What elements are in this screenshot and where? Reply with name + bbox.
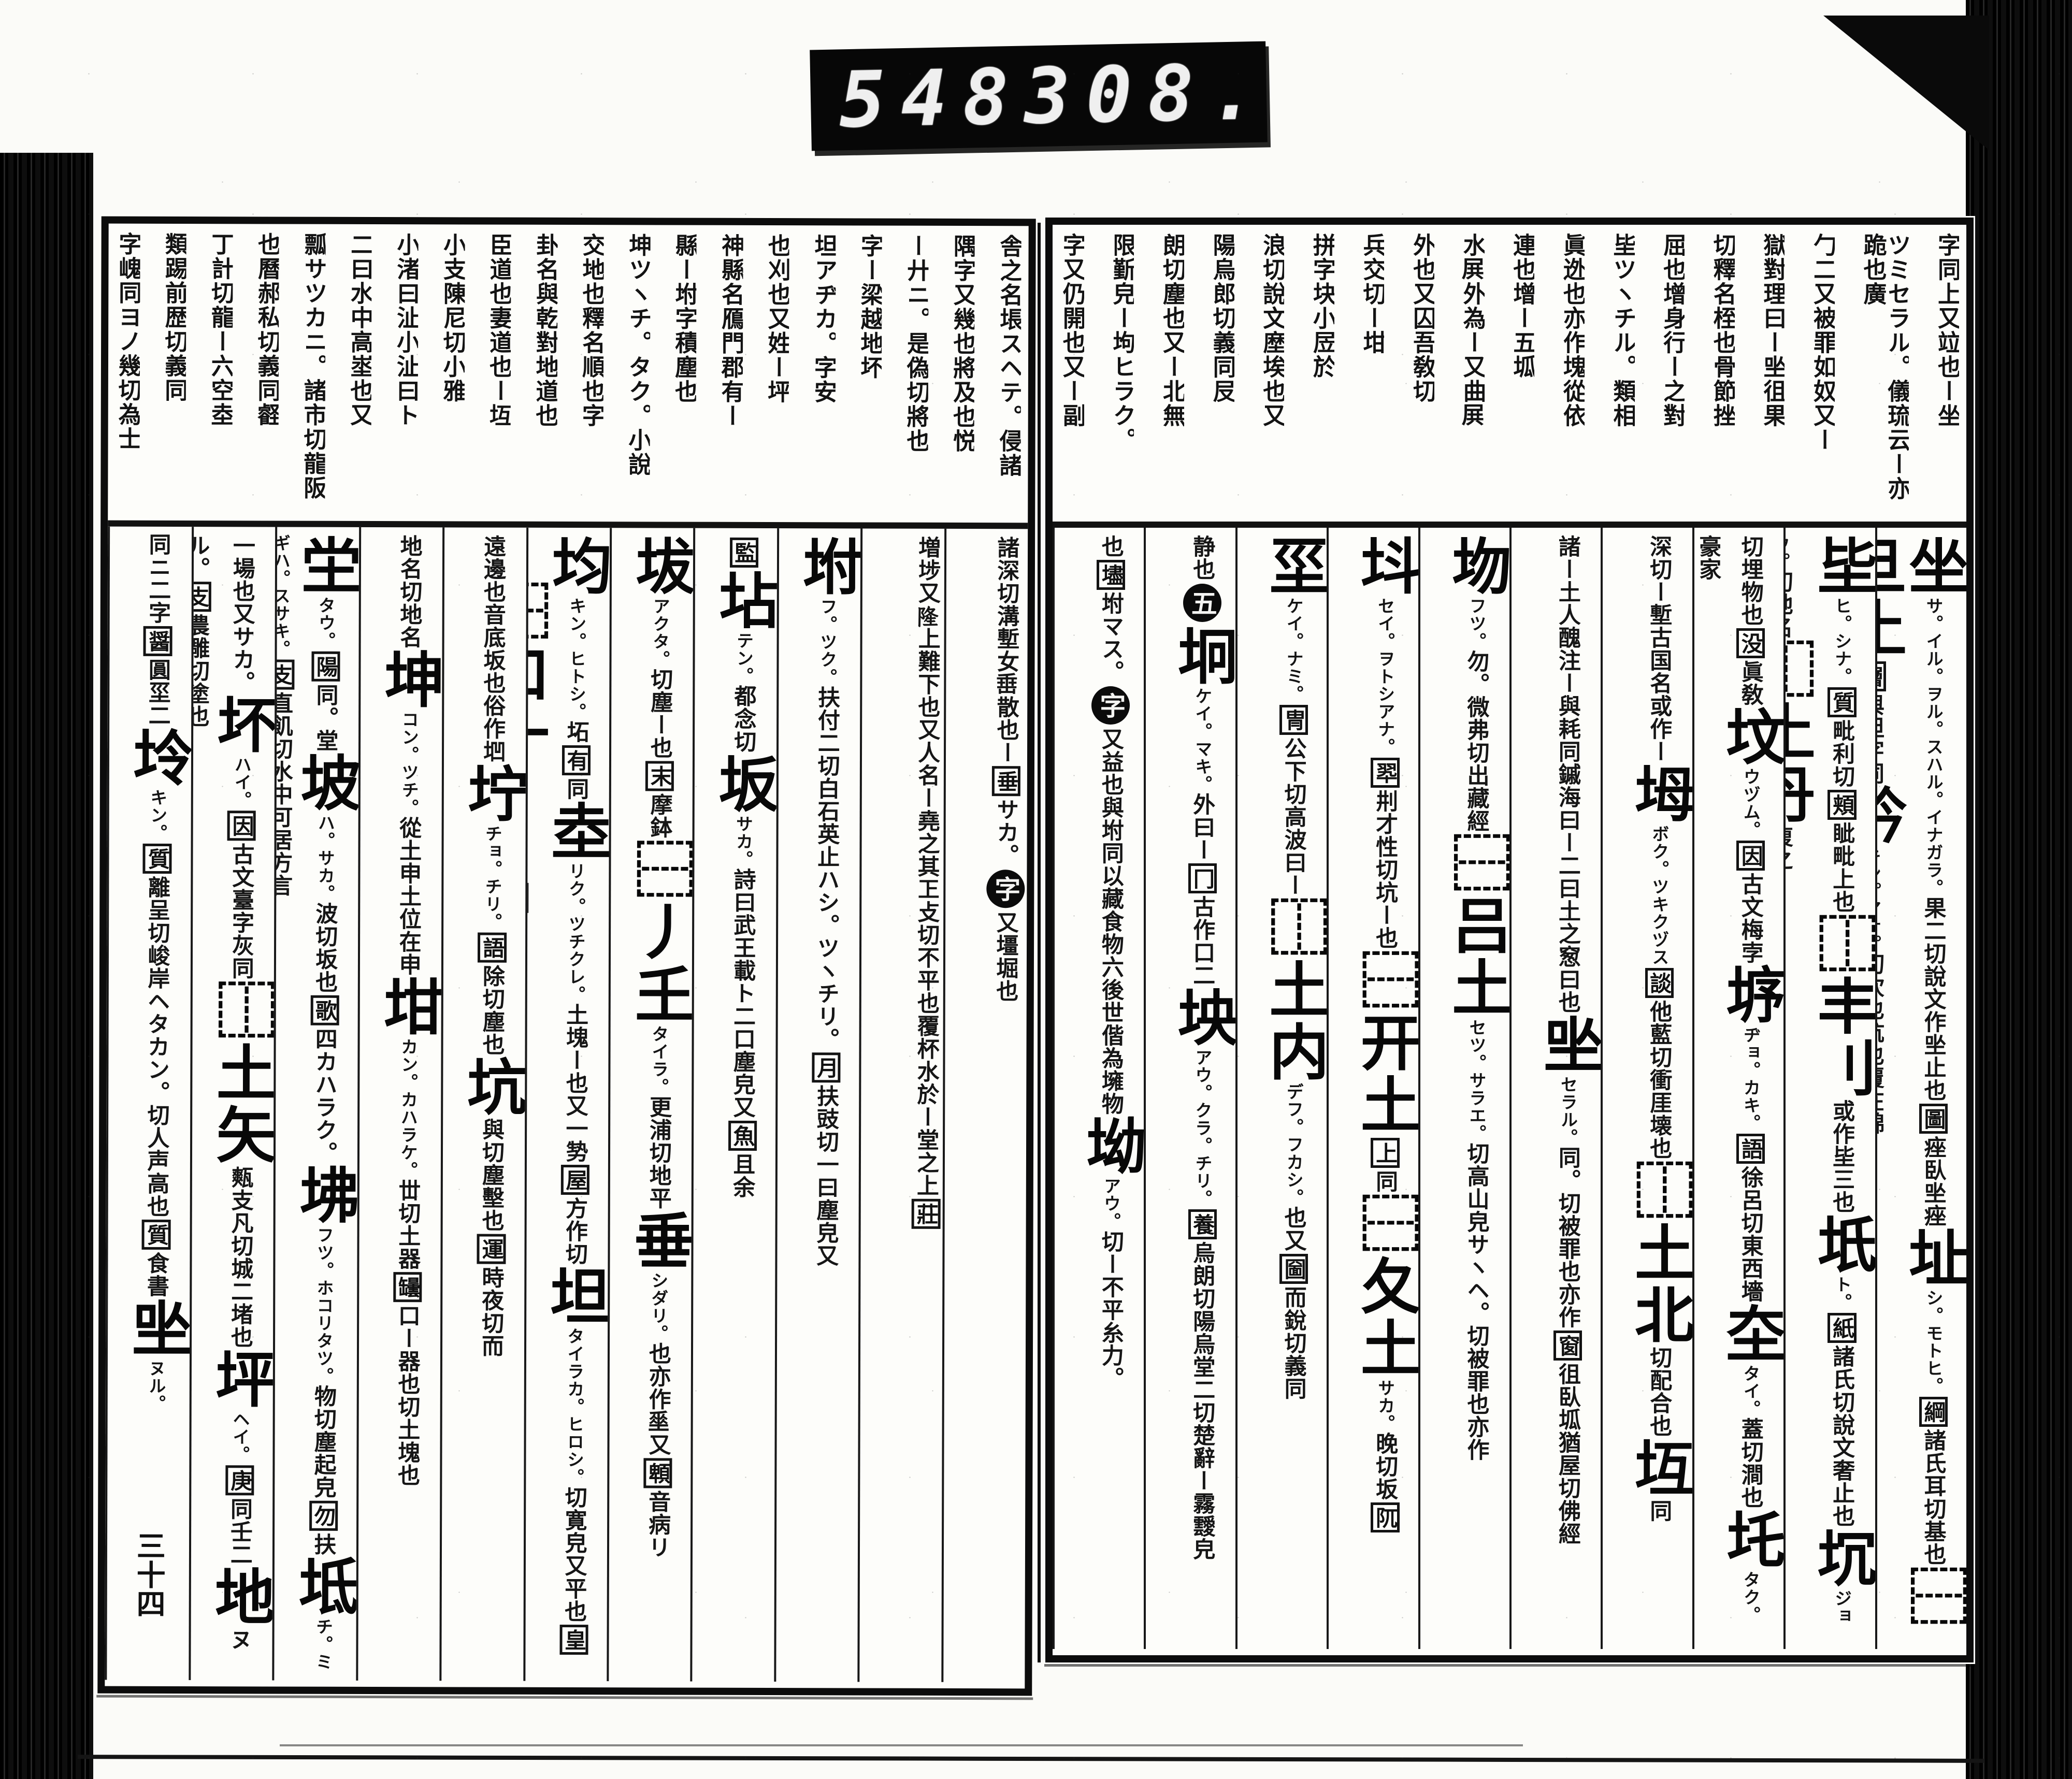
kana-reading: ケイ。マキ。 — [1192, 687, 1213, 793]
top-band-column: 朗切塵也又ー北無 — [1160, 233, 1184, 513]
top-band-column: 連也增ー五坬 — [1510, 233, 1534, 513]
gloss-note: 波切坂也 — [312, 902, 338, 993]
rhyme-ref-box: 勿 — [309, 1501, 338, 1531]
rhyme-ref-box: 因 — [1736, 841, 1765, 871]
kana-reading: ヘイ。 — [230, 1410, 250, 1463]
top-band-column: 小支陳尼切小雅 — [440, 233, 465, 513]
gloss-note: 切坎也坑也覆在錦 — [1875, 952, 1884, 1135]
gloss-note: 同。切被罪也亦作 — [1555, 1146, 1580, 1328]
gloss-note: 同壬二 — [226, 1497, 252, 1566]
gloss-note: 諸氏切說文奢止也 — [1829, 1345, 1855, 1527]
headword-character: 坈 — [1807, 1527, 1875, 1589]
entry-column: 坒ヒ。シナ。質毗利切頬眦毗上也⿰丰刂或作坒三也坁ト。紙諸氏切說文奢止也坈ジョウ。… — [1783, 528, 1875, 1649]
rhyme-ref-box: 運 — [477, 1234, 506, 1264]
top-band-column: 字同上又竝也ー坐 — [1935, 233, 1959, 513]
gloss-note: 土塊ー也又一㔟 — [562, 1003, 588, 1163]
gloss-note: ハシ。ツヽチリ。 — [813, 868, 840, 1050]
headword-character: 坣 — [291, 534, 359, 597]
kana-reading: ト。 — [1832, 1276, 1852, 1311]
page-right: 字同上又竝也ー坐ツミセラル。儀琉云ー亦跪也廣勹二又被罪如奴又ー獄對理曰ー㘴徂果切… — [1045, 218, 1974, 1662]
top-band-column: 舎之名㙊スヘテ。侵諸 — [996, 234, 1021, 514]
headword-character: 坘 — [1624, 1437, 1692, 1499]
kana-reading: タイラ。 — [649, 1025, 669, 1095]
gloss-note: 㓝才性切坑ー也 — [1372, 790, 1398, 949]
headword-character: 坺 — [625, 535, 693, 597]
top-band-column: 坦アヂカ。字安 — [811, 234, 836, 514]
top-band-column: 類踢前歴切義同 — [162, 232, 186, 512]
kana-reading: カン。カハラケ。 — [398, 1038, 419, 1179]
gloss-note: 切高山皃 — [1463, 1142, 1489, 1233]
gloss-note: 從土申土位在申 — [395, 816, 422, 976]
rhyme-ref-box: 紙 — [1828, 1313, 1856, 1343]
gloss-note: 農雕切塗也 — [189, 614, 209, 728]
kana-reading: タイラカ。ヒロシ。 — [564, 1327, 585, 1486]
gloss-note: 時夜切而 — [478, 1266, 504, 1357]
top-band-column: 交地也釋名順也字 — [579, 233, 604, 513]
headword-character: 坑 — [457, 1055, 526, 1118]
top-band-column: ー廾ニ。是偽切將也 — [903, 234, 928, 514]
gloss-note: 復之 — [1783, 825, 1793, 871]
top-band-column: 神縣名鴈門郡有ー — [718, 234, 743, 514]
entry-column: 也壗坿マス。字又益也與坿同以藏食物六後世偕為㙲物坳アウ。切ー不平糸力。 — [1053, 528, 1144, 1649]
gloss-note: 都念切 — [730, 685, 756, 753]
gloss-note: 他藍切衝厓壊也 — [1646, 1000, 1672, 1160]
rhyme-ref-box: 窗 — [1553, 1330, 1582, 1361]
gloss-note: 物切塵起皃 — [310, 1385, 337, 1499]
gloss-note: 増埗又𨺓上難下也又人名ー堯之其㠪 — [914, 536, 941, 901]
folio-number: 三十四 — [133, 1531, 163, 1618]
rhyme-ref-box: 末 — [645, 761, 674, 791]
entry-column: 坐サ。イル。ヲル。スハル。イナガラ。果二切說文作㘴止也圖痤臥㘴痤址シ。モトヒ。綱… — [1875, 528, 1966, 1649]
headword-character: 坅 — [1875, 785, 1907, 847]
gloss-note: 更浦切地平 — [645, 1095, 672, 1209]
gloss-note: 音病リ — [644, 1490, 670, 1558]
gloss-note: 切塵ー也 — [646, 668, 672, 759]
gloss-note: 離呈切峻岸 — [144, 876, 170, 990]
entry-column: 均キン。ヒトシ。坧有同坴リク。ツチクレ。土塊ー也又一㔟屋方作切坦タイラカ。ヒロシ… — [523, 528, 610, 1681]
gloss-note: 坧 — [563, 720, 589, 743]
headword-character: 坁 — [1807, 1213, 1875, 1276]
headword-character: 圶 — [1716, 1303, 1783, 1365]
top-band-column: 限斳皃ー坸ヒラク。 — [1110, 233, 1134, 513]
gloss-note: 坬猶屋切佛經 — [1555, 1408, 1580, 1545]
center-gutter — [1034, 223, 1044, 1662]
kana-reading: ヒ。シナ。 — [1832, 597, 1852, 685]
kana-reading: タク。 — [1740, 1571, 1761, 1624]
top-band-column: 陽烏郎切義同㞋 — [1210, 233, 1234, 513]
gloss-note: 切ー不平糸力。 — [1098, 1230, 1124, 1390]
kana-reading: キン。アナ。 — [1875, 847, 1882, 952]
entry-column: 圽フツ。勿。微弗切出藏經⿱吕土セツ。サラエ。切高山皃サヽヘ。切被罪也亦作 — [1418, 528, 1509, 1649]
headword-character: 坽 — [123, 727, 192, 789]
gloss-note: 公下切高波曰ー — [1280, 737, 1306, 896]
gloss-note: 除切塵也 — [479, 965, 505, 1056]
rhyme-ref-box: 綱 — [1919, 1397, 1948, 1427]
headword-character: 坤 — [374, 648, 442, 711]
kana-reading: アウ。 — [1101, 1177, 1121, 1230]
gloss-note: 晚切坂 — [1372, 1432, 1398, 1500]
top-band-column: 也曆郝私切義同壡 — [254, 232, 279, 512]
gloss-note: 切埋物也 — [1737, 535, 1763, 626]
headword-character: 址 — [1898, 1227, 1966, 1289]
headword-character: 㘰 — [1350, 535, 1418, 597]
top-band-column: ツミセラル。儀琉云ー亦跪也廣 — [1861, 233, 1909, 513]
gloss-note: 方作切 — [562, 1197, 587, 1265]
top-band-column: 水𡱒外為ー又曲𡱒 — [1460, 233, 1485, 513]
gloss-note: 也又 — [1280, 1206, 1306, 1252]
rhyme-ref-box: 阢 — [1371, 1502, 1399, 1532]
entry-column: 静也五坰ケイ。マキ。外曰ー冂古作口二坱アウ。クラ。チリ。養烏朗切陽烏堂二切楚辭ー… — [1144, 528, 1235, 1649]
page-right-main-register: 坐サ。イル。ヲル。スハル。イナガラ。果二切說文作㘴止也圖痤臥㘴痤址シ。モトヒ。綱… — [1053, 528, 1966, 1649]
kana-reading: ケイ。ナミ。 — [1284, 597, 1304, 703]
gloss-note: 国名或作ー — [1646, 649, 1672, 763]
headword-character: 坡 — [290, 752, 358, 814]
headword-character: ⿰土内 — [1259, 896, 1327, 1083]
kana-reading: シ。モトヒ。 — [1923, 1289, 1944, 1395]
kana-reading: タウ。 — [315, 597, 336, 649]
gloss-note: 古文梅孛 — [1737, 873, 1763, 964]
kana-reading: サカ。 — [1375, 1379, 1395, 1432]
rhyme-ref-box: 魚 — [728, 1121, 757, 1151]
bottom-scan-line — [78, 1755, 1984, 1763]
gloss-note: 四カハラク。 — [311, 1028, 338, 1164]
gloss-note: ヘタカン。切人声高也 — [143, 990, 170, 1218]
top-band-column: 字ー梁越地坏 — [857, 234, 882, 514]
top-band-column: 眞迯也亦作塊從依 — [1560, 233, 1585, 513]
top-band-column: 小渚曰沚小沚曰ト — [393, 233, 418, 513]
counter-left-number: 548 — [838, 52, 1025, 144]
gloss-note: 豪家 — [1695, 535, 1721, 581]
page-left: 舎之名㙊スヘテ。侵諸隅字又幾也將及也悦ー廾ニ。是偽切將也字ー梁越地坏坦アヂカ。字… — [97, 216, 1035, 1696]
top-band-column: 字㟴同ヨノ幾切為士 — [115, 232, 140, 512]
top-band-column: 二曰水中高埊也又 — [347, 233, 372, 513]
headword-character: 坿 — [793, 536, 860, 598]
rhyme-ref-box: 莊 — [912, 1199, 940, 1229]
entry-column: 遠邊也音底坂也俗作垇坾チョ。チリ。語除切塵也坑與切塵墼也運時夜切而 — [439, 527, 526, 1681]
section-marker: 字 — [1091, 686, 1130, 725]
kana-reading: フ。ツク。 — [817, 598, 838, 686]
rhyme-ref-box: 醤 — [143, 626, 172, 656]
headword-character: 坳 — [1076, 1115, 1144, 1177]
rhyme-ref-box: 監 — [729, 538, 758, 568]
gloss-note: 坿 — [1098, 592, 1124, 615]
rhyme-ref-box: 屋 — [561, 1165, 589, 1195]
gloss-note: 同 — [1646, 1499, 1672, 1522]
counter-display: 548 308. — [810, 41, 1268, 151]
top-band-column: 浪切說文塺埃也又 — [1260, 233, 1284, 513]
rhyme-ref-box: 壗 — [1097, 560, 1125, 590]
headword-character: 坶 — [1624, 763, 1692, 825]
headword-character: 坱 — [1168, 987, 1235, 1049]
gloss-note: 與切塵墼也 — [478, 1118, 505, 1232]
rhyme-ref-box: 月 — [812, 1052, 840, 1082]
rhyme-ref-box: 歌 — [310, 995, 339, 1025]
top-band-column: 丁計切龍ー六空坴 — [208, 232, 233, 512]
rhyme-ref-box: 質 — [142, 844, 171, 874]
gloss-note: 毗利切 — [1829, 719, 1855, 788]
gloss-note: 又壃堀也 — [992, 911, 1018, 1002]
top-band-column: 拼字块小㞐於 — [1310, 233, 1334, 513]
kana-reading: リク。ツチクレ。 — [566, 862, 586, 1003]
gloss-note: 諸氏耳切基也 — [1920, 1429, 1946, 1566]
top-band-column: 坤ツヽチ。タク。小說 — [625, 233, 650, 513]
gloss-note: 地名切地名 — [396, 534, 423, 648]
gloss-note: 而銳切義同 — [1280, 1286, 1306, 1400]
rhyme-ref-box: 罎 — [393, 1272, 422, 1302]
rhyme-ref-box: 頬 — [1828, 790, 1856, 820]
gloss-note: サヽヘ。切被罪也亦作 — [1463, 1233, 1489, 1461]
top-band-column: 屈也增身行ー之對 — [1660, 233, 1685, 513]
gloss-note: 食書 — [143, 1252, 169, 1297]
headword-character: 坾 — [457, 762, 526, 825]
headword-character: 坒 — [1807, 535, 1875, 597]
gloss-note: 詩曰武王載ト二口塵皃又 — [729, 868, 756, 1119]
gloss-note: 扶 — [310, 1533, 336, 1556]
gloss-note: 蓋切澗也 — [1737, 1418, 1763, 1509]
gloss-note: 烏朗切陽烏堂二切楚辭ー霧靉皃 — [1189, 1241, 1215, 1560]
gloss-note: 切寛皃又平也 — [561, 1486, 587, 1623]
gloss-note: 又益也與坿同 — [1098, 728, 1124, 864]
rhyme-ref-box: 語 — [1736, 1134, 1765, 1164]
top-band-column: 臣道也妻道也ー坘 — [486, 233, 511, 513]
gloss-note: 與坦字同 — [1875, 693, 1884, 785]
gloss-note: サカ。 — [992, 798, 1018, 866]
headword-character: 坴 — [541, 800, 610, 862]
headword-character: 坦 — [540, 1265, 610, 1327]
headword-character: ⿰土丹 — [1783, 639, 1815, 825]
headword-character: 坲 — [289, 1164, 359, 1226]
right-scan-edge-band — [1966, 0, 2072, 1779]
gloss-note: 同。堂 — [312, 684, 338, 752]
kana-reading: シダリ。 — [648, 1271, 668, 1342]
kana-reading: ヂョ。カキ。 — [1740, 1026, 1761, 1132]
headword-character: 坙 — [1259, 535, 1327, 597]
rhyme-ref-box: 垂 — [992, 766, 1020, 796]
gloss-note: マス。 — [1098, 615, 1124, 683]
headword-character: 地 — [205, 1566, 275, 1628]
margin-column: 同ニ二字醤圓坙二坽キン。質離呈切峻岸ヘタカン。切人声高也質食書㘴ヌル。三十四 — [105, 527, 192, 1680]
page-left-main-register: 諸深切溝塹女𡸁散也ー垂サカ。字又壃堀也増埗又𨺓上難下也又人名ー堯之其㠪攴切不平也… — [105, 527, 1028, 1683]
kana-reading: サ。イル。ヲル。スハル。イナガラ。 — [1923, 597, 1944, 896]
entry-column: 㘰セイ。ヲトシアナ。翆㓝才性切坑ー也⿱开土上同⿱夂土サカ。晚切坂阢 — [1327, 528, 1418, 1649]
gloss-note: 諸ー土人醜注ー與耗同鏚 — [1555, 535, 1580, 786]
rhyme-ref-box: 語 — [478, 933, 506, 963]
headword-character: 坻 — [288, 1556, 358, 1618]
rhyme-ref-box: 質 — [141, 1220, 170, 1250]
headword-character: 坰 — [1168, 625, 1235, 687]
kana-reading: ウヅム。 — [1740, 768, 1761, 838]
gloss-note: 諸深切溝塹女𡸁散也ー — [993, 536, 1019, 764]
headword-character: 㘴 — [1533, 1014, 1601, 1076]
rhyme-ref-box: 庚 — [225, 1465, 254, 1495]
bottom-scan-smudge — [280, 1744, 1523, 1746]
headword-character: 坐 — [1898, 535, 1966, 597]
headword-character: ⿱口十 — [523, 581, 550, 767]
gloss-note: 同ニ二字 — [145, 533, 171, 624]
gloss-note: 同 — [1372, 1170, 1398, 1193]
headword-character: 坪 — [205, 1348, 275, 1410]
gloss-note: 也 — [1098, 535, 1124, 558]
headword-character: ⿰土矢 — [206, 979, 275, 1166]
gloss-note: 或作坒三也 — [1829, 1100, 1855, 1213]
headword-character: ⿱夂土 — [1350, 1193, 1418, 1379]
kana-reading: サカ。 — [733, 815, 753, 868]
top-band-column: 字又仍開也又ー副 — [1060, 233, 1084, 513]
gloss-note: 深切ー塹古 — [1646, 535, 1672, 649]
rhyme-ref-box: 因 — [227, 811, 256, 841]
kana-reading: フツ。ホコリタツ。 — [314, 1226, 335, 1385]
headword-character: 坩 — [373, 976, 443, 1038]
headword-character: 圫 — [1716, 1509, 1783, 1571]
gloss-note: 古文臺字灰同 — [228, 843, 254, 979]
gloss-note: 外曰ー — [1189, 793, 1215, 861]
gloss-note: 扶豉切一曰塵皃又 — [813, 1084, 839, 1267]
rhyme-ref-box: 冂 — [1188, 863, 1217, 893]
top-right-shadow-wedge — [1823, 16, 1989, 150]
kana-reading: コン。ツチ。 — [399, 711, 420, 816]
gloss-note: 切地名 — [1783, 570, 1793, 639]
entry-column: 地名切地名坤コン。ツチ。從土申土位在申坩カン。カハラケ。丗切土器罎口ー器也切土塊… — [356, 527, 442, 1681]
kana-reading: アクタ。 — [650, 597, 670, 668]
scanned-dictionary-page: 548 308. 字同上又竝也ー坐ツミセラル。儀琉云ー亦跪也廣勹二又被罪如奴又ー… — [0, 0, 2072, 1779]
headword-character: 坟 — [1716, 706, 1783, 768]
headword-character: ⿱丿𡈼 — [624, 838, 694, 1025]
kana-reading: ハイ。 — [232, 756, 252, 808]
entry-column: 諸深切溝塹女𡸁散也ー垂サカ。字又壃堀也 — [941, 529, 1028, 1682]
entry-column: 一場也又サカ。坏ハイ。因古文臺字灰同⿰土矢㼽支凡切城二堵也坪ヘイ。庚同壬二地ヌル… — [189, 527, 275, 1680]
kana-reading: デフ。フカシ。 — [1284, 1083, 1304, 1206]
gloss-note: 也亦作𡍮又 — [645, 1342, 671, 1456]
kana-reading: ツキクヅス — [1649, 878, 1670, 966]
top-band-column: 隅字又幾也將及也悦 — [950, 234, 975, 514]
entry-column: 坣タウ。陽同。堂坡ハ。サカ。波切坂也歌四カハラク。坲フツ。ホコリタツ。物切塵起皃… — [272, 527, 359, 1681]
rhyme-ref-box: 支 — [272, 659, 295, 689]
gloss-note: 切配合也 — [1646, 1346, 1672, 1437]
top-band-column: 瓢サツカニ。諸市切龍阪 — [300, 233, 325, 513]
kana-reading: セイ。ヲトシアナ。 — [1375, 597, 1395, 756]
gloss-note: 㼽支凡切城二堵也 — [227, 1166, 253, 1348]
rhyme-ref-box: 圙 — [1279, 1254, 1308, 1284]
headword-character: ⿱开土 — [1350, 949, 1418, 1136]
kana-reading: フツ。 — [1466, 597, 1487, 650]
section-marker: 字 — [986, 870, 1025, 908]
rhyme-ref-box: 陽 — [311, 652, 340, 682]
entry-column: 坺アクタ。切塵ー也末摩鉢⿱丿𡈼タイラ。更浦切地平垂シダリ。也亦作𡍮又䫌音病リ — [607, 528, 693, 1681]
kana-reading: キン。 — [148, 789, 168, 842]
kana-reading: ハ。サカ。 — [315, 814, 335, 902]
rhyme-ref-box: 質 — [1828, 687, 1856, 717]
top-band-column: 卦名與乾對地道也 — [533, 233, 557, 513]
rhyme-ref-box: 支 — [189, 582, 211, 612]
headword-character: ⿰土北 — [1624, 1160, 1692, 1346]
rhyme-ref-box: 養 — [1188, 1209, 1217, 1239]
rhyme-ref-box: 冑 — [1279, 705, 1308, 735]
headword-character: ⿱吕土 — [1442, 832, 1509, 1019]
headword-character: 㘴 — [121, 1297, 191, 1359]
top-band-column: 勹二又被罪如奴又ー — [1810, 233, 1835, 513]
gloss-note: 痤臥㘴痤 — [1920, 1136, 1946, 1227]
gloss-note: 一場也又サカ。 — [229, 534, 255, 693]
kana-reading: アウ。クラ。チリ。 — [1192, 1049, 1213, 1207]
gloss-note: 徐呂切東西墻 — [1737, 1166, 1763, 1303]
rhyme-ref-box: 䫌 — [643, 1458, 672, 1488]
entry-column: 増埗又𨺓上難下也又人名ー堯之其㠪攴切不平也覆杯水於ー堂之上莊 — [858, 528, 944, 1682]
section-marker: 五 — [1183, 584, 1221, 622]
gloss-note: 古作口二 — [1189, 895, 1215, 987]
headword-character: 垿 — [1716, 964, 1783, 1026]
gloss-note: 且余 — [729, 1153, 755, 1198]
rhyme-ref-box: 層 — [1875, 661, 1886, 691]
kana-reading: タイ。 — [1740, 1365, 1761, 1418]
left-scan-edge-band — [0, 153, 93, 1779]
top-band-column: 兵交切ー坩 — [1360, 233, 1385, 513]
gloss-note: 同 — [563, 777, 589, 800]
kana-reading: セラル。 — [1558, 1076, 1578, 1146]
kana-reading: ヌル。 — [146, 1359, 166, 1412]
gloss-note: 以藏食物六後世偕為㙲物 — [1098, 864, 1124, 1115]
rhyme-ref-box: 談 — [1645, 968, 1674, 998]
gloss-note: 海曰ー二曰土之䆫曰也 — [1555, 786, 1580, 1014]
gloss-note: 遠邊也音底坂也俗作垇 — [480, 535, 506, 763]
page-left-top-register: 舎之名㙊スヘテ。侵諸隅字又幾也將及也悦ー廾ニ。是偽切將也字ー梁越地坏坦アヂカ。字… — [108, 224, 1029, 529]
gloss-note: 眞敎 — [1737, 660, 1763, 706]
top-band-column: 也刈也又姓ー坪 — [765, 234, 789, 514]
gloss-note: 直飢切水中可居方言 — [272, 691, 293, 896]
gloss-note: 摩鉢 — [646, 793, 672, 838]
entry-column: 諸ー土人醜注ー與耗同鏚海曰ー二曰土之䆫曰也㘴セラル。同。切被罪也亦作窗徂臥坬猶屋… — [1509, 528, 1601, 1649]
entry-column: 深切ー塹古国名或作ー坶ボク。ツキクヅス談他藍切衝厓壊也⿰土北切配合也坘同 — [1601, 528, 1692, 1649]
page-right-top-register: 字同上又竝也ー坐ツミセラル。儀琉云ー亦跪也廣勹二又被罪如奴又ー獄對理曰ー㘴徂果切… — [1053, 225, 1966, 528]
top-band-column: 坒ツヽチル。類相 — [1610, 233, 1635, 513]
headword-character: 圽 — [1442, 535, 1509, 597]
kana-reading: キン。ヒトシ。 — [566, 597, 587, 720]
entry-column: 切埋物也没眞敎坟ウヅム。因古文梅孛垿ヂョ。カキ。語徐呂切東西墻圶タイ。蓋切澗也圫… — [1692, 528, 1783, 1649]
rhyme-ref-box: 圖 — [1919, 1104, 1948, 1134]
headword-character: 垂 — [624, 1209, 694, 1271]
rhyme-ref-box: 皇 — [559, 1625, 588, 1655]
headword-character: ⿰丰刂 — [1807, 913, 1875, 1100]
rhyme-ref-box: 上 — [1371, 1138, 1399, 1168]
rhyme-ref-box: 有 — [562, 745, 591, 775]
gloss-note: 静也 — [1189, 535, 1215, 581]
entry-column: 坿フ。ツク。扶付二切白石英止ハシ。ツヽチリ。月扶豉切一曰塵皃又 — [774, 528, 860, 1682]
kana-reading: セツ。サラエ。 — [1466, 1019, 1487, 1142]
kana-reading: ボク。 — [1649, 825, 1670, 878]
gloss-note: 丗切土器 — [395, 1179, 421, 1270]
gloss-note: 口ー器也切土塊也 — [394, 1304, 420, 1486]
rhyme-ref-box: 没 — [1736, 628, 1765, 658]
gloss-note: 勿。微弗切出藏經 — [1463, 650, 1489, 832]
kana-reading: チョ。チリ。 — [482, 825, 503, 931]
gloss-note: 果二切說文作㘴止也 — [1920, 896, 1946, 1102]
headword-character: 均 — [542, 535, 610, 597]
kana-reading: テン。 — [733, 632, 754, 685]
counter-right-number: 308. — [1024, 47, 1272, 141]
headword-character: 坏 — [207, 693, 275, 756]
headword-character: 坫 — [709, 570, 777, 632]
top-band-column: 外也又囚吾敎切 — [1410, 233, 1434, 513]
gloss-note: 扶付二切白石英止 — [814, 686, 840, 868]
top-band-column: 獄對理曰ー㘴徂果 — [1761, 233, 1785, 513]
gloss-note: 攴切不平也覆杯水於ー堂之上 — [913, 901, 939, 1197]
entry-column: 監坫テン。都念切坂サカ。詩曰武王載ト二口塵皃又魚且余 — [690, 528, 777, 1682]
gloss-note: 徂臥 — [1555, 1363, 1580, 1408]
headword-character: 坂 — [708, 753, 776, 815]
top-band-column: 縣ー坿字積塵也 — [672, 234, 697, 514]
entry-column: 坙ケイ。ナミ。冑公下切高波曰ー⿰土内デフ。フカシ。也又圙而銳切義同 — [1235, 528, 1327, 1649]
top-band-column: 切釋名桎也骨節挫 — [1710, 233, 1735, 513]
gloss-note: 圓坙二 — [145, 658, 170, 727]
